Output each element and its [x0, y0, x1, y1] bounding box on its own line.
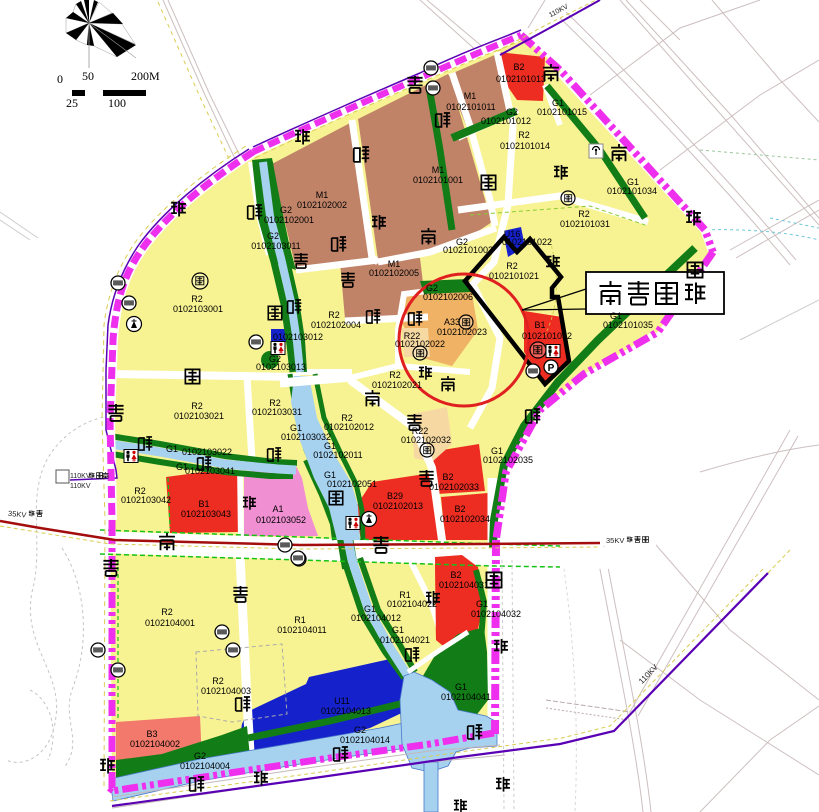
svg-text:G2: G2: [354, 725, 366, 735]
svg-text:G2: G2: [194, 751, 206, 761]
svg-text:0102101022: 0102101022: [502, 237, 552, 247]
svg-text:0102103021: 0102103021: [174, 411, 224, 421]
svg-text:A1: A1: [272, 504, 283, 514]
svg-text:R2: R2: [191, 401, 203, 411]
svg-text:0102104002: 0102104002: [130, 739, 180, 749]
svg-text:0102101013: 0102101013: [496, 74, 546, 84]
svg-text:G2: G2: [267, 231, 279, 241]
svg-text:0102101015: 0102101015: [537, 107, 587, 117]
svg-text:0102102005: 0102102005: [369, 268, 419, 278]
svg-text:0102103031: 0102103031: [252, 407, 302, 417]
svg-text:0102102004: 0102102004: [311, 320, 361, 330]
svg-text:G1: G1: [166, 444, 178, 454]
svg-text:0102101002: 0102101002: [443, 245, 493, 255]
svg-text:M1: M1: [464, 91, 477, 101]
svg-text:B2: B2: [442, 472, 453, 482]
svg-text:0102102021: 0102102021: [372, 380, 422, 390]
svg-text:B1: B1: [534, 320, 545, 330]
svg-text:0102102002: 0102102002: [297, 200, 347, 210]
svg-text:110KV: 110KV: [70, 473, 91, 480]
svg-text:0102104004: 0102104004: [180, 761, 230, 771]
svg-text:25: 25: [66, 96, 78, 110]
svg-text:0102104013: 0102104013: [321, 706, 371, 716]
svg-text:0102101032: 0102101032: [522, 331, 572, 341]
svg-text:B2: B2: [450, 570, 461, 580]
svg-text:0102103011: 0102103011: [251, 241, 300, 251]
svg-text:0: 0: [57, 72, 63, 86]
svg-text:0102104001: 0102104001: [145, 618, 195, 628]
svg-text:110KV: 110KV: [70, 483, 91, 490]
svg-text:R2: R2: [212, 676, 224, 686]
svg-text:G1: G1: [392, 625, 404, 635]
svg-text:G2: G2: [280, 205, 292, 215]
svg-text:0102103052: 0102103052: [256, 515, 306, 525]
svg-text:0102102006: 0102102006: [423, 292, 473, 302]
svg-text:0102101014: 0102101014: [500, 141, 550, 151]
svg-text:0102104003: 0102104003: [201, 686, 251, 696]
svg-text:200M: 200M: [131, 69, 160, 83]
svg-text:B3: B3: [146, 729, 157, 739]
svg-text:0102102035: 0102102035: [483, 455, 533, 465]
svg-text:A33: A33: [444, 317, 460, 327]
svg-text:U11: U11: [334, 696, 350, 706]
svg-text:B2: B2: [513, 62, 524, 72]
svg-text:0102102034: 0102102034: [440, 514, 490, 524]
svg-text:0102101031: 0102101031: [560, 219, 610, 229]
svg-text:B1: B1: [198, 499, 209, 509]
svg-text:0102101001: 0102101001: [413, 175, 463, 185]
svg-text:M1: M1: [432, 165, 445, 175]
svg-text:R2: R2: [191, 294, 203, 304]
svg-text:0102103013: 0102103013: [256, 362, 306, 372]
svg-text:0102102033: 0102102033: [429, 482, 479, 492]
svg-text:R2: R2: [578, 209, 590, 219]
svg-text:0102104012: 0102104012: [351, 613, 401, 623]
svg-text:0102103043: 0102103043: [181, 509, 231, 519]
svg-text:0102104032: 0102104032: [471, 609, 521, 619]
svg-text:0102102023: 0102102023: [437, 327, 487, 337]
svg-text:0102102051: 0102102051: [327, 479, 377, 489]
svg-text:0102102022: 0102102022: [395, 339, 445, 349]
svg-text:35KV: 35KV: [8, 509, 27, 520]
svg-text:G1: G1: [476, 599, 488, 609]
svg-text:R2: R2: [328, 310, 340, 320]
svg-text:0102102012: 0102102012: [324, 422, 374, 432]
svg-text:0102102032: 0102102032: [401, 435, 451, 445]
svg-text:R2: R2: [161, 607, 173, 617]
svg-text:0102101021: 0102101021: [489, 271, 539, 281]
svg-text:B2: B2: [454, 504, 465, 514]
svg-text:0102101011: 0102101011: [446, 102, 495, 112]
svg-text:0102101012: 0102101012: [481, 116, 531, 126]
svg-text:0102102013: 0102102013: [373, 501, 423, 511]
svg-text:0102101035: 0102101035: [603, 320, 653, 330]
svg-text:100: 100: [108, 96, 126, 110]
svg-text:0102103022: 0102103022: [182, 447, 232, 457]
svg-text:R2: R2: [389, 370, 401, 380]
svg-text:0102102001: 0102102001: [264, 215, 314, 225]
svg-text:0102103001: 0102103001: [173, 304, 223, 314]
svg-text:R2: R2: [518, 130, 530, 140]
svg-text:0102102011: 0102102011: [313, 450, 362, 460]
svg-text:B29: B29: [387, 491, 403, 501]
svg-text:M1: M1: [316, 190, 329, 200]
svg-text:0102104014: 0102104014: [340, 735, 390, 745]
svg-text:R2: R2: [506, 261, 518, 271]
svg-text:0102104011: 0102104011: [277, 625, 326, 635]
svg-text:0102103012: 0102103012: [273, 332, 323, 342]
svg-text:0102104041: 0102104041: [441, 692, 491, 702]
svg-text:0102104021: 0102104021: [380, 635, 430, 645]
svg-text:R1: R1: [294, 615, 306, 625]
svg-text:0102101034: 0102101034: [607, 186, 657, 196]
svg-text:G1: G1: [455, 682, 467, 692]
svg-text:35KV: 35KV: [606, 536, 624, 545]
svg-text:0102103042: 0102103042: [121, 495, 171, 505]
svg-text:0102104031: 0102104031: [439, 580, 489, 590]
svg-text:50: 50: [82, 69, 94, 83]
